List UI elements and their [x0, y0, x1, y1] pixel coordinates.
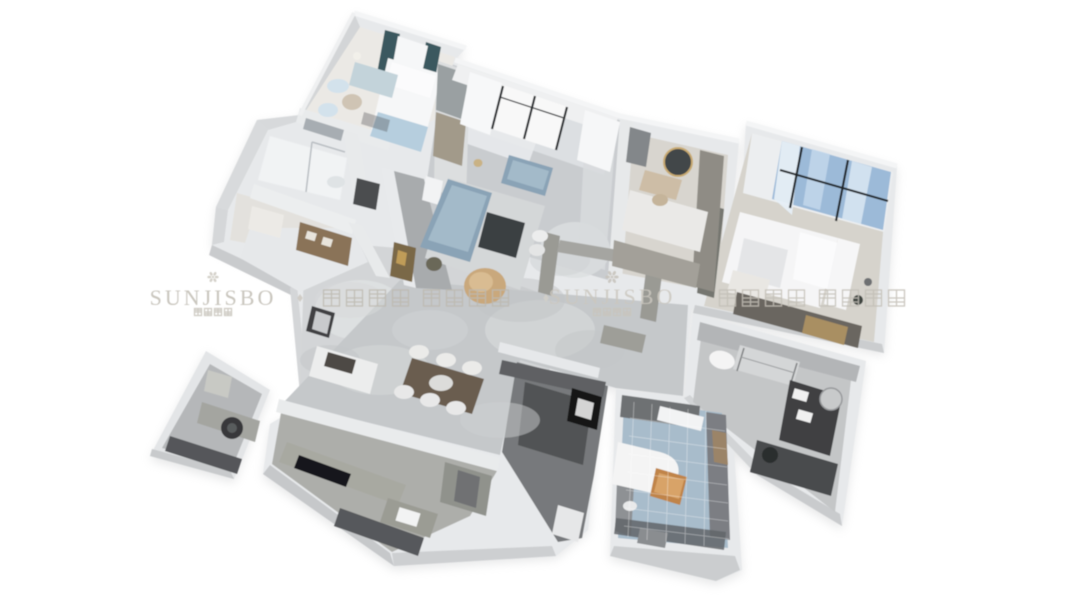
svg-text:SUNJISBO: SUNJISBO — [150, 285, 277, 310]
svg-text:SUNJISBO: SUNJISBO — [549, 284, 676, 309]
